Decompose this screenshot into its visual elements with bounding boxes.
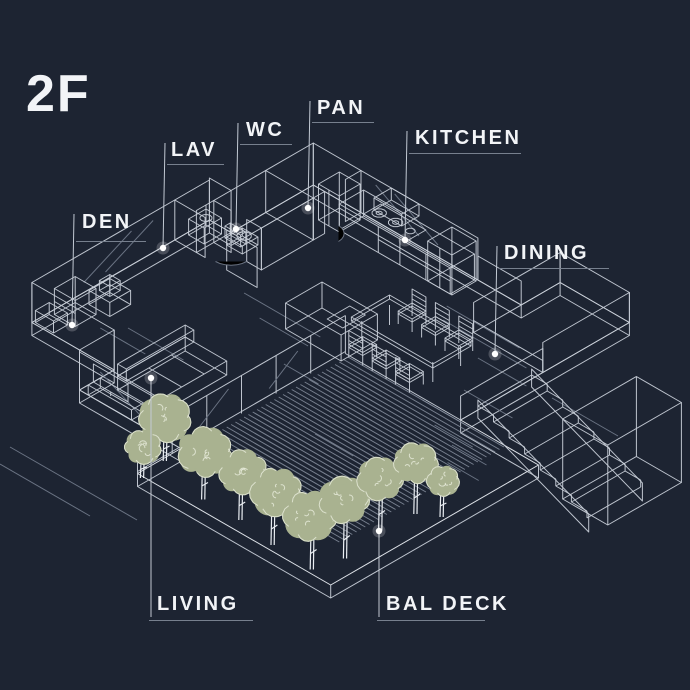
- room-label-living: LIVING: [157, 593, 239, 615]
- room-label-dining-underline: [499, 268, 609, 269]
- room-label-lav: LAV: [171, 139, 217, 161]
- room-label-kitchen: KITCHEN: [415, 127, 521, 149]
- floor-title: 2F: [26, 68, 91, 120]
- room-label-living-underline: [149, 620, 253, 621]
- room-label-bal-deck-underline: [377, 620, 485, 621]
- room-label-kitchen-underline: [409, 153, 521, 154]
- room-label-dining: DINING: [504, 242, 589, 264]
- room-label-lav-underline: [167, 164, 224, 165]
- room-label-den-underline: [76, 241, 146, 242]
- room-label-wc-underline: [240, 144, 292, 145]
- room-label-pan: PAN: [317, 97, 365, 119]
- deck-trees: [125, 394, 460, 570]
- room-label-den: DEN: [82, 211, 132, 233]
- floorplan-illustration: 2F DEN LAV WC PAN KITCHEN DINING LIVING …: [0, 0, 690, 690]
- walls-and-furniture: [32, 143, 682, 525]
- room-label-pan-underline: [312, 122, 374, 123]
- room-label-wc: WC: [246, 119, 284, 141]
- label-leader-lines: [66, 101, 502, 617]
- room-label-bal-deck: BAL DECK: [386, 593, 509, 615]
- stairs: [478, 369, 643, 532]
